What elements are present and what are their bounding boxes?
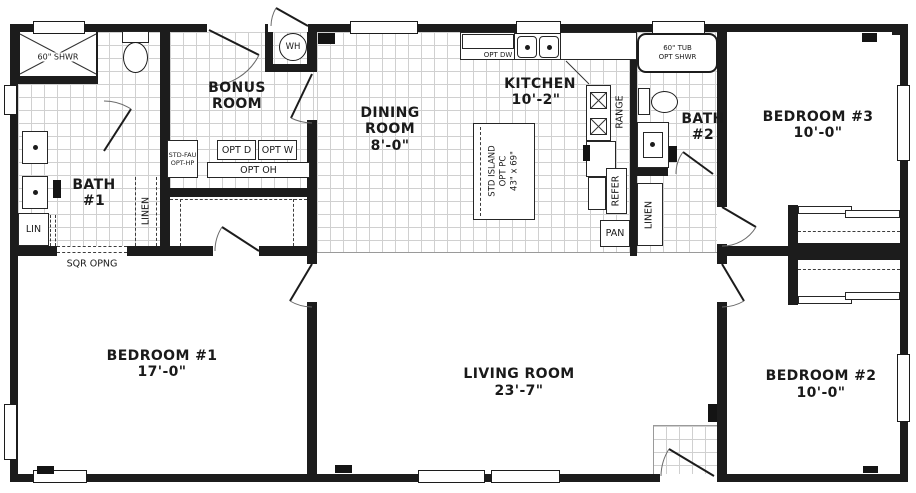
burner-b bbox=[590, 118, 607, 135]
bonus-room-label-2: ROOM bbox=[212, 96, 262, 112]
window-bedroom2-right bbox=[897, 354, 910, 422]
pantry-box: PAN bbox=[600, 220, 630, 247]
opening-front-door bbox=[660, 474, 717, 482]
bedroom3-dim: 10'-0" bbox=[793, 125, 842, 141]
dining-room-dim: 8'-0" bbox=[371, 138, 410, 154]
shower-label: 60" SHWR bbox=[36, 53, 81, 62]
window-bedroom1-left bbox=[4, 404, 17, 460]
window-bath1-left bbox=[4, 85, 17, 115]
outlet-bedroom2 bbox=[863, 466, 878, 473]
bath1-label: BATH bbox=[72, 177, 115, 193]
tub-60in: 60" TUB OPT SHWR bbox=[637, 33, 718, 73]
wall-main-h4 bbox=[717, 246, 798, 256]
linen-bath1-dash-a bbox=[135, 177, 136, 246]
floor-edge-entry-left bbox=[653, 425, 654, 475]
wall-closets-center bbox=[798, 243, 908, 260]
lin-dash-b bbox=[55, 215, 56, 246]
wall-main-h1 bbox=[10, 246, 57, 256]
refer-label: REFER bbox=[611, 176, 622, 207]
bedroom2-label: BEDROOM #2 bbox=[766, 368, 877, 384]
tub-label-1: 60" TUB bbox=[663, 44, 692, 53]
bedroom2-dim: 10'-0" bbox=[796, 385, 845, 401]
door-bedroom3-arc bbox=[722, 227, 756, 246]
bath2-label: BATH bbox=[681, 111, 724, 127]
outlet-bedroom1 bbox=[37, 466, 54, 474]
opt-dryer-label: OPT D bbox=[222, 145, 251, 156]
closet1-rod-left bbox=[180, 199, 181, 246]
toilet2-tank bbox=[638, 88, 650, 115]
wall-living-bedroom2 bbox=[717, 302, 727, 482]
floor-plan: LIN WH STD-FAU OPT-HP OPT D OPT W OPT OH… bbox=[0, 0, 916, 493]
opt-dryer-box: OPT D bbox=[217, 140, 256, 160]
tile-floor-entry bbox=[653, 426, 717, 474]
closet3-slider-b bbox=[845, 210, 900, 218]
opt-overhead-box: OPT OH bbox=[207, 162, 310, 178]
furnace-label-2: OPT-HP bbox=[171, 159, 195, 167]
closet3-slider-a bbox=[798, 206, 852, 214]
bedroom1-label: BEDROOM #1 bbox=[107, 348, 218, 364]
sqr-opng-label: SQR OPNG bbox=[67, 259, 118, 270]
door-closet1-arc bbox=[215, 227, 222, 251]
toilet2-bowl bbox=[651, 91, 678, 113]
burner-a bbox=[590, 92, 607, 109]
bedroom1-dim: 17'-0" bbox=[137, 364, 186, 380]
lin-dash-a bbox=[50, 215, 51, 246]
closet3-shelf-dash bbox=[798, 231, 900, 232]
outlet-hall-entry bbox=[708, 404, 717, 422]
furnace-label-1: STD-FAU bbox=[169, 151, 197, 159]
electrical-panel-dining bbox=[318, 33, 335, 44]
sink1-b-drain bbox=[33, 190, 38, 195]
wall-main-h3 bbox=[259, 246, 317, 256]
lin-closet: LIN bbox=[18, 213, 49, 246]
water-heater: WH bbox=[279, 33, 307, 61]
sqr-opening-dash-b bbox=[57, 252, 127, 253]
vanity2-drain bbox=[650, 142, 655, 147]
lin-label: LIN bbox=[26, 224, 41, 235]
outlet-living bbox=[335, 465, 352, 473]
opt-washer-box: OPT W bbox=[258, 140, 297, 160]
living-room-dim: 23'-7" bbox=[494, 383, 543, 399]
opening-bonus-door bbox=[207, 24, 265, 32]
linen-bath1-label: LINEN bbox=[141, 197, 152, 225]
island-label-3: 43" x 69" bbox=[510, 145, 521, 196]
living-room-label: LIVING ROOM bbox=[463, 366, 574, 382]
window-bath2-top bbox=[652, 21, 705, 34]
sink-drain-b bbox=[547, 45, 552, 50]
wall-main-h2 bbox=[127, 246, 213, 256]
outlet-kitchen bbox=[583, 145, 590, 161]
water-heater-label: WH bbox=[286, 42, 301, 52]
linen-hall-label: LINEN bbox=[644, 201, 655, 229]
tub-label-2: OPT SHWR bbox=[659, 53, 697, 62]
toilet1-bowl bbox=[123, 42, 148, 73]
window-living-bottom-a bbox=[418, 470, 485, 483]
sink1-a-drain bbox=[33, 145, 38, 150]
door-bedroom3-leaf bbox=[722, 207, 756, 227]
bedroom3-label: BEDROOM #3 bbox=[763, 109, 874, 125]
sink-drain-a bbox=[525, 45, 530, 50]
floor-edge-entry-top bbox=[653, 425, 717, 426]
island-label: STD ISLAND OPT PC 43" x 69" bbox=[487, 145, 520, 196]
bath1-label-2: #1 bbox=[83, 193, 105, 209]
opening-wh-door bbox=[268, 24, 308, 32]
range-label: RANGE bbox=[615, 95, 626, 128]
window-bath1-top bbox=[33, 21, 85, 34]
closet2-slider-a bbox=[798, 296, 852, 304]
island-label-1: STD ISLAND bbox=[487, 145, 498, 196]
sqr-opening-dash-a bbox=[57, 246, 127, 247]
pantry-label: PAN bbox=[606, 228, 625, 239]
wall-bath1-bonus bbox=[160, 24, 170, 246]
wall-closet1-north bbox=[167, 188, 317, 197]
window-kitchen-top bbox=[516, 21, 561, 34]
island-label-2: OPT PC bbox=[498, 145, 509, 196]
dining-room-label-2: ROOM bbox=[365, 121, 415, 137]
wall-wh-niche-bottom bbox=[265, 64, 317, 72]
bath2-label-2: #2 bbox=[692, 127, 714, 143]
opt-overhead-label: OPT OH bbox=[240, 165, 277, 176]
kitchen-counter-section bbox=[462, 34, 514, 49]
bonus-room-label: BONUS bbox=[208, 80, 266, 96]
opt-dishwasher-label: OPT DW bbox=[484, 51, 513, 59]
refer-alcove bbox=[588, 177, 606, 210]
island-dash bbox=[480, 127, 481, 216]
closet1-rod-right bbox=[293, 199, 294, 246]
dining-room-label: DINING bbox=[360, 105, 419, 121]
door-bedroom1-leaf bbox=[290, 264, 312, 301]
window-bedroom3-right bbox=[897, 85, 910, 161]
closet2-shelf-dash bbox=[798, 269, 900, 270]
door-bedroom2-leaf bbox=[722, 264, 744, 301]
wall-bath2-south bbox=[630, 168, 668, 176]
furnace-box: STD-FAU OPT-HP bbox=[167, 140, 198, 178]
wall-bedroom1-east bbox=[307, 302, 317, 482]
window-living-bottom-b bbox=[491, 470, 560, 483]
outlet-bedroom3 bbox=[862, 33, 877, 42]
opt-washer-label: OPT W bbox=[262, 145, 293, 156]
outlet-bath1 bbox=[53, 180, 61, 198]
closet1-shelf-dash bbox=[170, 199, 307, 200]
linen-bath1-dash-b bbox=[156, 177, 157, 246]
kitchen-dim: 10'-2" bbox=[511, 92, 560, 108]
door-closet1-leaf bbox=[222, 227, 259, 251]
closet2-slider-b bbox=[845, 292, 900, 300]
outlet-bath2 bbox=[669, 146, 677, 162]
wall-corner-nub bbox=[892, 24, 904, 35]
kitchen-label: KITCHEN bbox=[504, 76, 576, 92]
floor-edge-living bbox=[317, 252, 717, 253]
window-dining-top bbox=[350, 21, 418, 34]
